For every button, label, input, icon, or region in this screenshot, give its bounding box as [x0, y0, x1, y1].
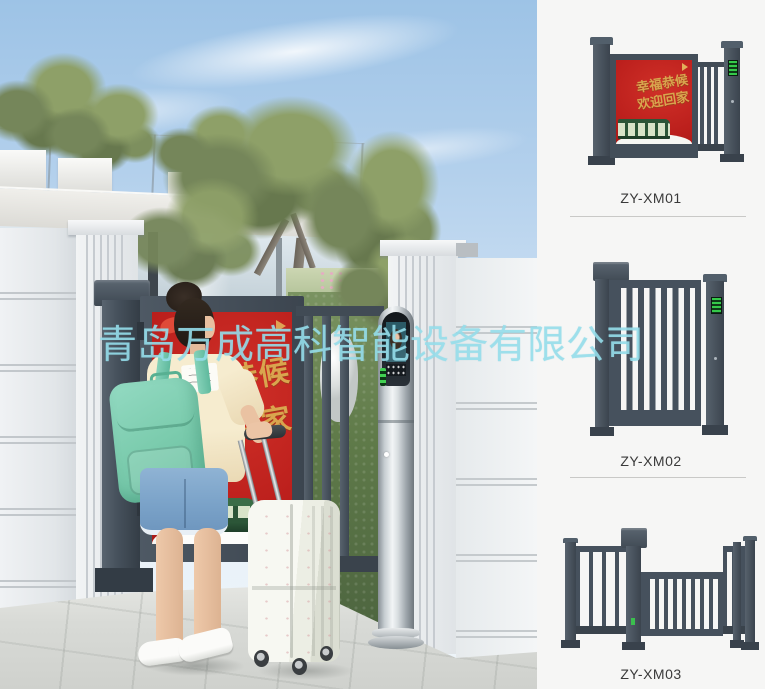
- wall-pillar-cap: [68, 220, 144, 235]
- product-label: ZY-XM03: [537, 666, 765, 682]
- product-label: ZY-XM01: [537, 190, 765, 206]
- product-showcase-image: 幸福恭候 欢迎回家: [0, 0, 765, 689]
- gate-post-foot: [720, 154, 744, 162]
- suitcase: [248, 500, 340, 662]
- wall-pillar-cap: [380, 240, 466, 256]
- gate-bar: [700, 67, 704, 144]
- fence-post-foot: [741, 642, 759, 650]
- gate-post-foot: [702, 425, 728, 435]
- boundary-wall-left: [0, 228, 78, 614]
- fence-post: [565, 542, 576, 642]
- gate-motor-box: [621, 528, 647, 548]
- access-keypad: [728, 60, 738, 76]
- wall-cap-block: [456, 243, 478, 257]
- suitcase-seam: [252, 586, 336, 590]
- gate-post: [626, 546, 641, 648]
- gate-post-foot: [95, 568, 153, 592]
- scene-photo: 幸福恭候 欢迎回家: [0, 0, 537, 689]
- gate-post: [595, 279, 609, 429]
- gate-top-rail: [296, 306, 384, 316]
- gate-bars: [615, 288, 695, 410]
- rooftop-planter: [58, 158, 112, 192]
- gate-hinge: [137, 322, 144, 340]
- gate-bar: [340, 316, 349, 556]
- pillar-seam: [378, 420, 414, 423]
- suitcase-wheel: [292, 658, 307, 675]
- green-indicator-light: [631, 618, 635, 625]
- gate-bottom-rail: [698, 144, 726, 151]
- fence-post: [733, 542, 741, 642]
- gate-bar: [707, 67, 711, 144]
- denim-shorts: [140, 468, 228, 535]
- woman-leg: [194, 528, 221, 642]
- gate-bars: [646, 579, 718, 629]
- face-recognition-screen: [386, 322, 406, 362]
- green-indicator-light: [380, 368, 386, 386]
- pillar-button: [384, 452, 389, 457]
- poster-train-illustration: [618, 119, 670, 139]
- suitcase-zipper: [290, 504, 293, 658]
- woman-leg: [156, 528, 183, 646]
- product-panel: 幸福恭候 欢迎回家 ZY-XM01: [537, 0, 765, 689]
- product-label: ZY-XM02: [537, 453, 765, 469]
- lock-dot: [714, 357, 717, 360]
- fence-post: [745, 540, 755, 644]
- product-card-zy-xm02: ZY-XM02: [537, 217, 765, 477]
- suitcase-wheel: [254, 650, 269, 667]
- arrow-decoration: [276, 320, 286, 332]
- pillar-base: [368, 636, 424, 649]
- gate-post: [593, 44, 610, 160]
- product-card-zy-xm01: 幸福恭候 欢迎回家 ZY-XM01: [537, 0, 765, 216]
- suitcase-wheel: [320, 646, 333, 661]
- gate-bar: [714, 67, 718, 144]
- boundary-wall-right: [456, 258, 537, 662]
- access-keypad: [711, 297, 722, 314]
- gate-post-foot: [590, 427, 614, 436]
- lock-dot: [731, 100, 734, 103]
- gate-post-cap: [721, 41, 743, 48]
- device-keypad: [386, 364, 406, 376]
- rooftop-planter: [0, 150, 46, 188]
- ad-poster-thumbnail: 幸福恭候 欢迎回家: [616, 60, 692, 144]
- woman-face: [205, 316, 215, 338]
- fence-bars: [576, 552, 628, 626]
- gate-post-foot: [622, 642, 645, 650]
- fence-bottom-rail: [576, 626, 628, 634]
- product-card-zy-xm03: ZY-XM03: [537, 478, 765, 689]
- fence-post-foot: [561, 640, 580, 648]
